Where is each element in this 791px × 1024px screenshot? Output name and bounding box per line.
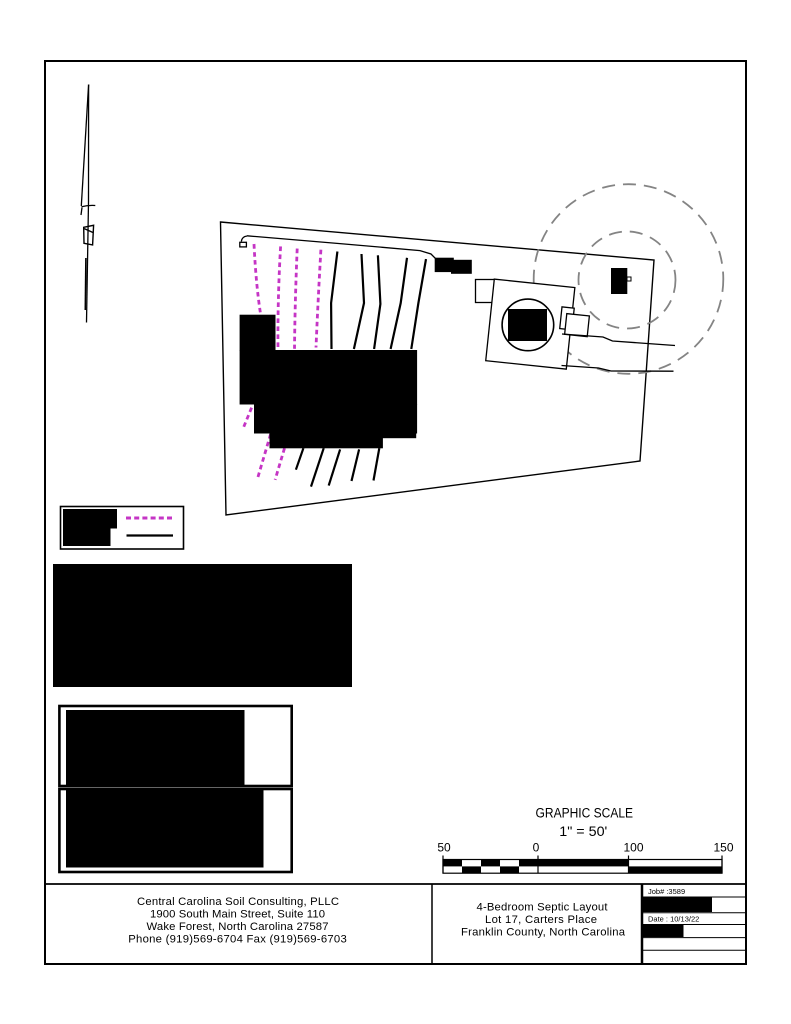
svg-text:1" = 50': 1" = 50' (559, 824, 607, 839)
svg-text:0: 0 (533, 841, 540, 855)
svg-text:Phone (919)569-6704 Fax (919)5: Phone (919)569-6704 Fax (919)569-6703 (128, 934, 347, 946)
svg-text:50: 50 (437, 841, 451, 855)
svg-text:100: 100 (623, 841, 643, 855)
svg-text:Lot 17, Carters Place: Lot 17, Carters Place (485, 914, 597, 926)
svg-text:Job# :3589: Job# :3589 (648, 887, 685, 896)
svg-text:1900 South Main Street, Suite: 1900 South Main Street, Suite 110 (150, 909, 325, 921)
svg-text:Central Carolina Soil Consulti: Central Carolina Soil Consulting, PLLC (137, 896, 339, 908)
svg-text:Wake Forest, North Carolina 27: Wake Forest, North Carolina 27587 (147, 921, 329, 933)
svg-text:4-Bedroom Septic Layout: 4-Bedroom Septic Layout (477, 902, 609, 914)
svg-text:Date : 10/13/22: Date : 10/13/22 (648, 915, 699, 924)
svg-text:Franklin County, North Carolin: Franklin County, North Carolina (461, 927, 626, 939)
svg-text:150: 150 (713, 841, 733, 855)
svg-text:GRAPHIC SCALE: GRAPHIC SCALE (536, 806, 634, 821)
